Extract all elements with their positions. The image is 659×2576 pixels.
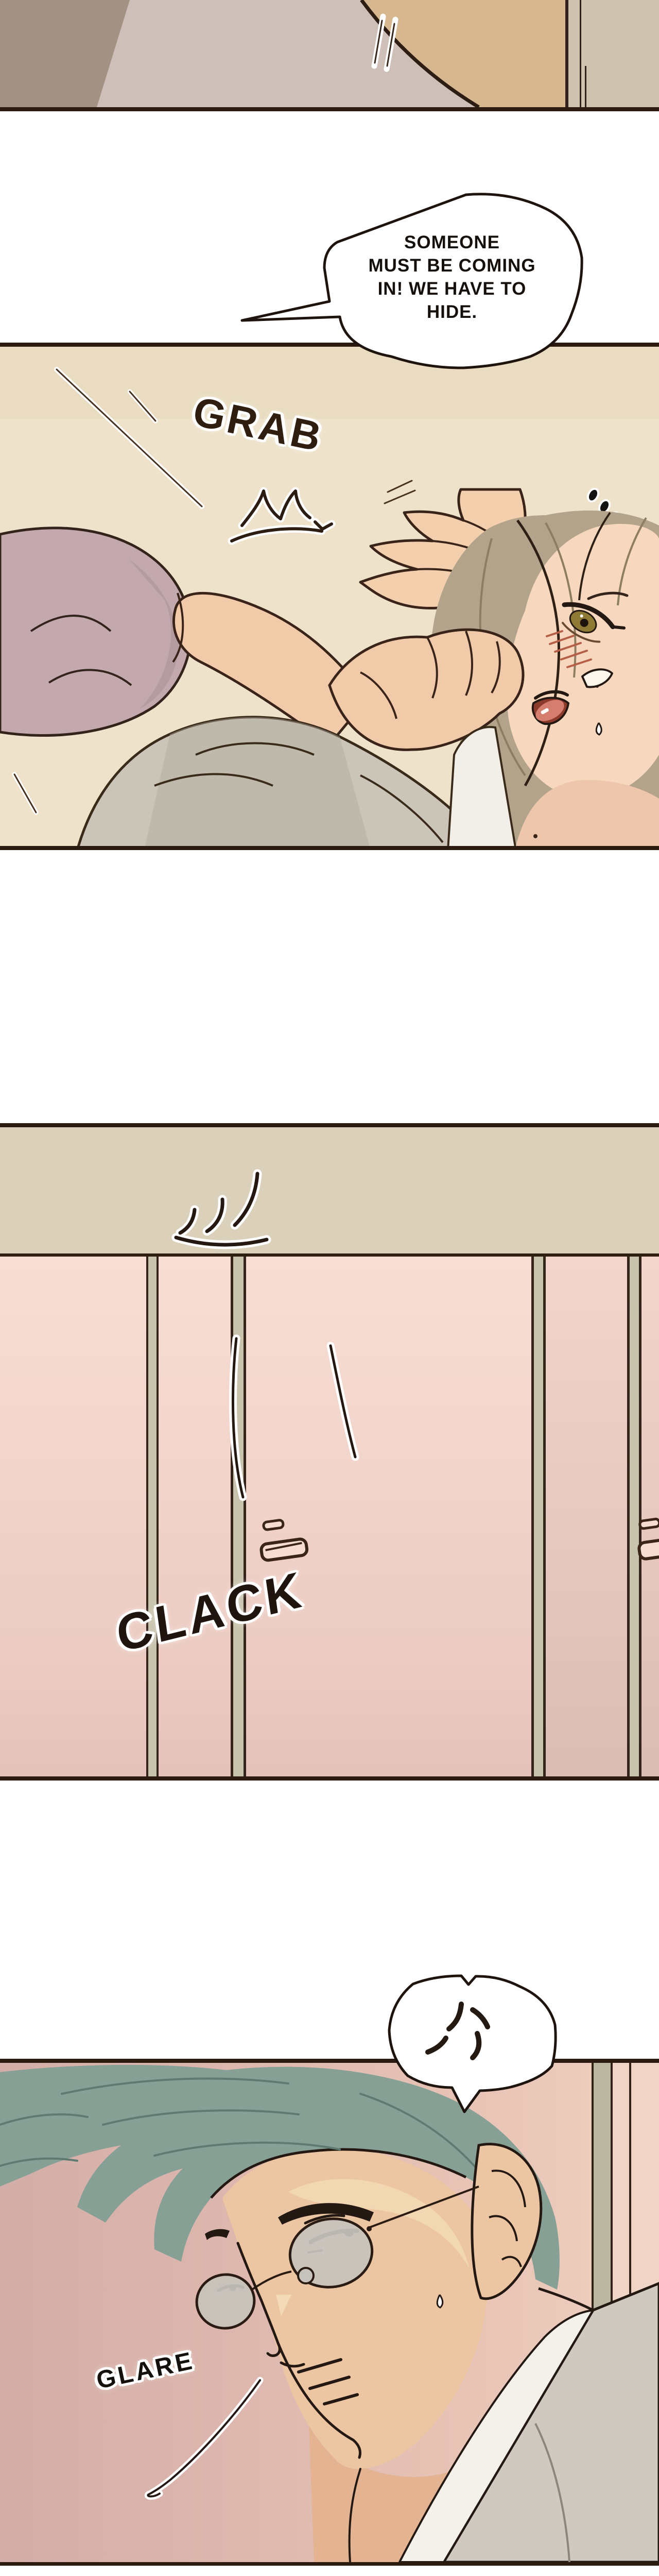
divider-a <box>146 1257 159 1776</box>
panel-wall-doorframe <box>0 0 659 111</box>
sweat-drop <box>596 723 601 735</box>
panel-closet-doors <box>0 1123 659 1781</box>
door-frame <box>592 2063 659 2315</box>
wall-above-closet <box>0 1127 659 1256</box>
panel-2-illustration <box>0 347 659 846</box>
speech-bubble-text: SOMEONE MUST BE COMING IN! WE HAVE TO HI… <box>334 231 570 324</box>
divider-b <box>231 1257 246 1776</box>
panel-wrist-grab <box>0 343 659 850</box>
anger-bubble <box>371 1955 577 2120</box>
frame-line-1 <box>565 0 568 107</box>
frame-line-2 <box>580 0 581 107</box>
divider-d <box>627 1257 641 1776</box>
panel-3-illustration <box>0 1127 659 1776</box>
speech-line: HIDE. <box>334 300 570 324</box>
closet-right-section <box>545 1257 659 1776</box>
panel-1-illustration <box>0 0 659 107</box>
webtoon-page: SOMEONE MUST BE COMING IN! WE HAVE TO HI… <box>0 0 659 2576</box>
frame-line-3 <box>585 66 586 107</box>
panel-4-illustration <box>0 2063 659 2562</box>
closet-top-edge <box>0 1253 659 1257</box>
speech-line: MUST BE COMING <box>334 254 570 277</box>
speech-line: SOMEONE <box>334 231 570 254</box>
frame-right <box>568 0 659 107</box>
speech-line: IN! WE HAVE TO <box>334 277 570 300</box>
divider-c <box>531 1257 546 1776</box>
panel-man-glare <box>0 2059 659 2566</box>
